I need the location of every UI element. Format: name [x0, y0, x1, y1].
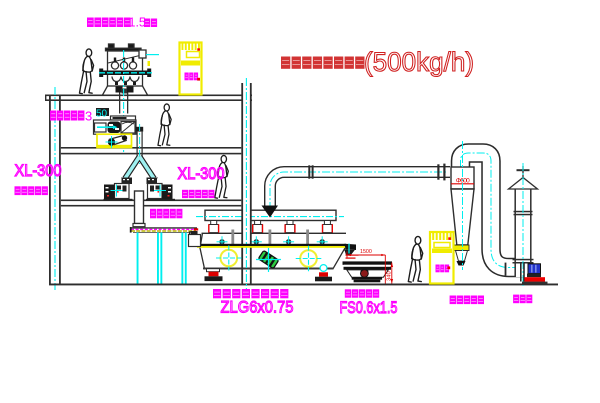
svg-text:XL-300: XL-300	[178, 165, 225, 183]
svg-text:50: 50	[96, 109, 108, 120]
svg-text:340: 340	[386, 271, 392, 281]
svg-text:ZLG6x0.75: ZLG6x0.75	[221, 298, 294, 317]
svg-text:3: 3	[85, 109, 92, 124]
svg-text:XL-300: XL-300	[15, 162, 62, 180]
svg-text:(500kg/h): (500kg/h)	[364, 47, 474, 77]
svg-text:FS0.6x1.5: FS0.6x1.5	[340, 298, 398, 317]
svg-text:1500: 1500	[360, 249, 372, 255]
svg-text:1.5: 1.5	[129, 16, 146, 30]
